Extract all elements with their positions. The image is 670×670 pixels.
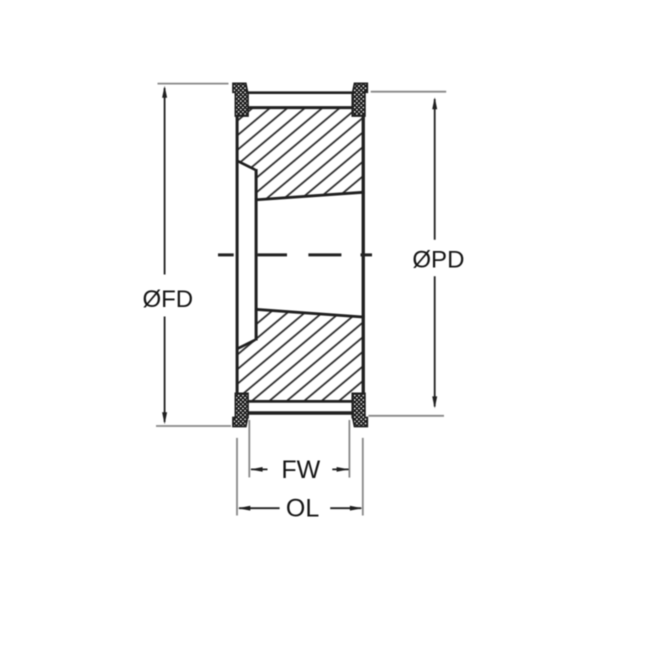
svg-text:FW: FW <box>281 456 320 484</box>
svg-text:OL: OL <box>286 494 319 522</box>
svg-text:ØPD: ØPD <box>412 247 464 274</box>
svg-text:ØFD: ØFD <box>142 286 193 313</box>
